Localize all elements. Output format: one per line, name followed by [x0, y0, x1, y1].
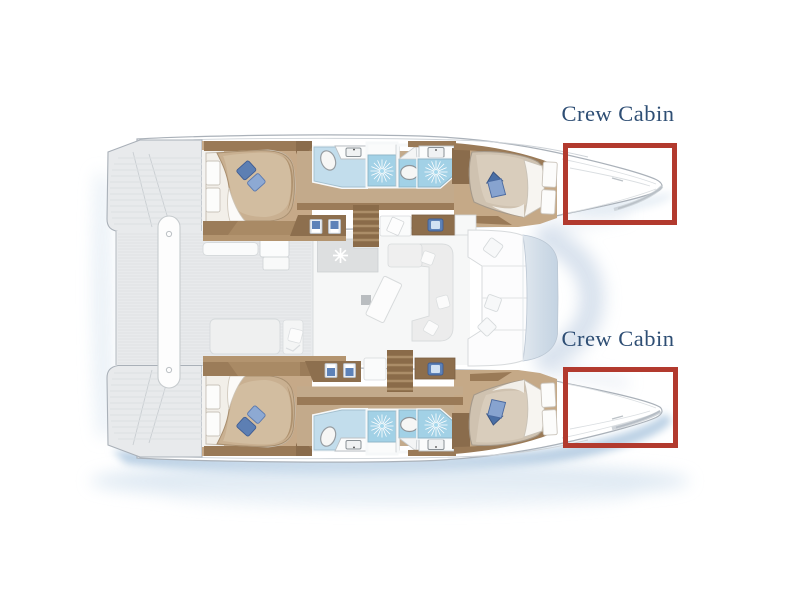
svg-text:Crew Cabin: Crew Cabin: [561, 326, 674, 351]
svg-text:Crew Cabin: Crew Cabin: [561, 101, 674, 126]
